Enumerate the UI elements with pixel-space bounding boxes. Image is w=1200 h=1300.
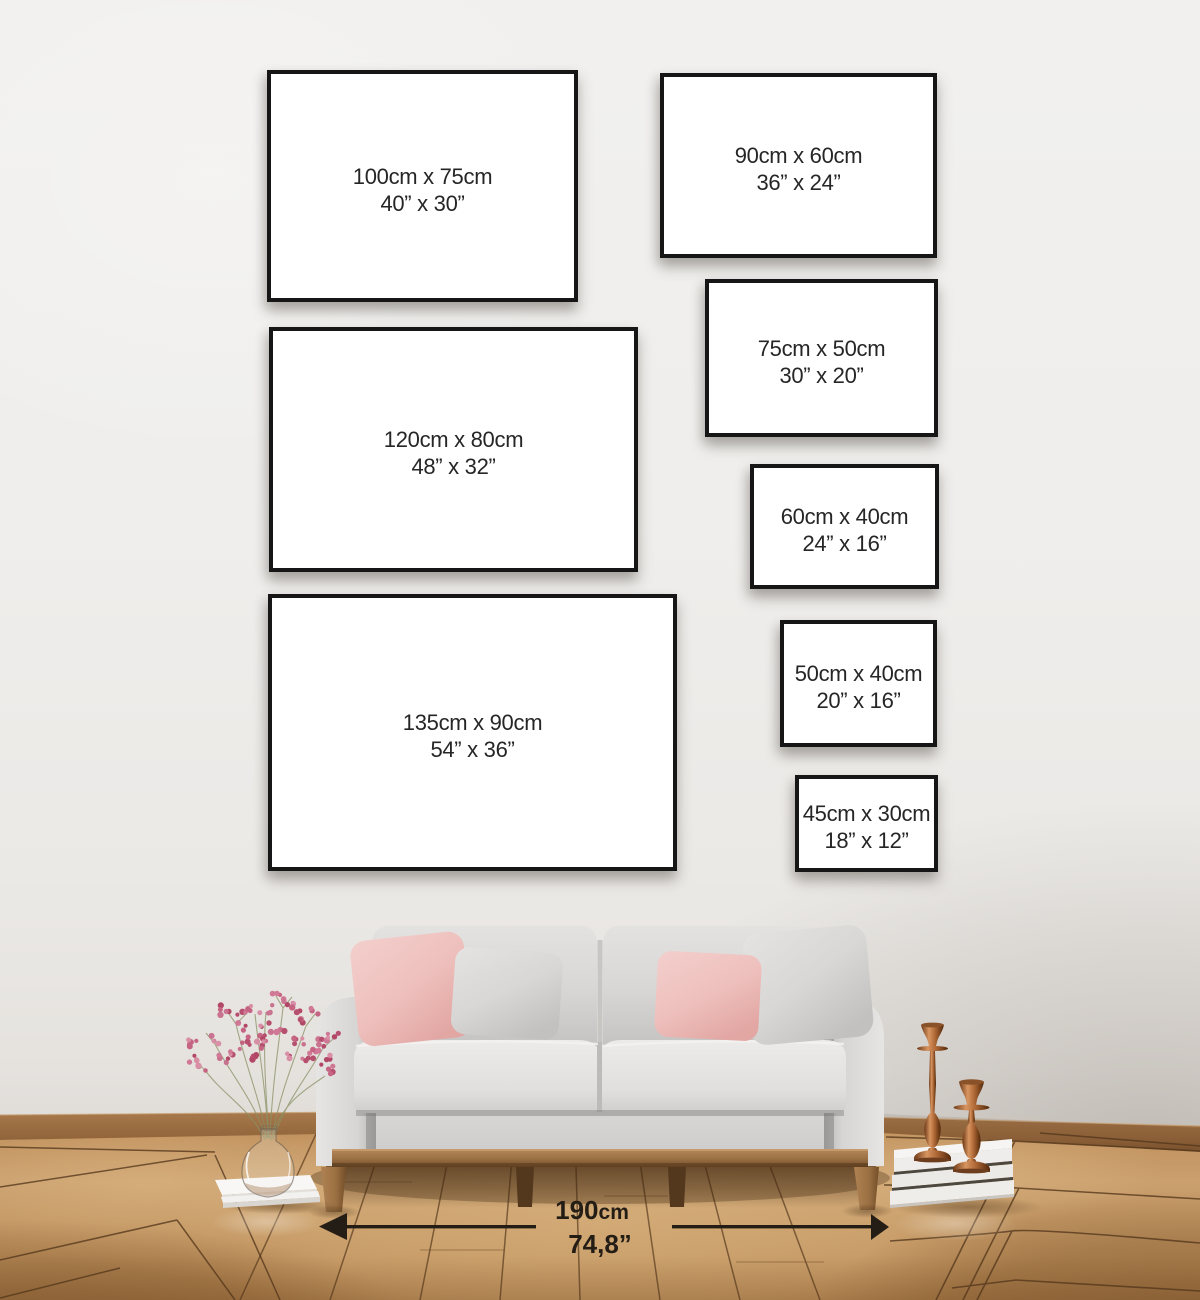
- svg-text:74,8”: 74,8”: [568, 1229, 632, 1259]
